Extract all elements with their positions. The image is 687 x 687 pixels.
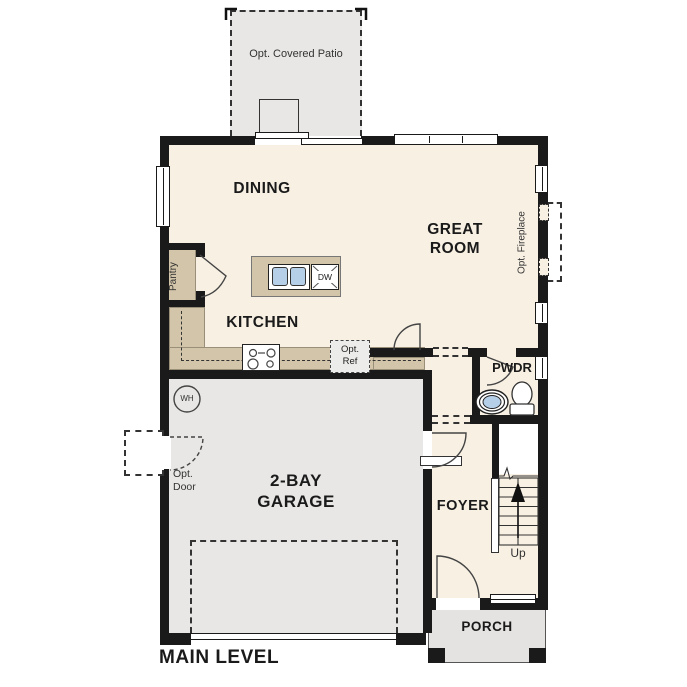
wall-left-1 (160, 136, 169, 167)
window-divider (462, 136, 463, 143)
window-divider (542, 167, 543, 191)
opt-fireplace-opening-bottom (539, 258, 549, 276)
floor-plan: Opt. Covered Patio DINING GREAT ROOM KIT… (0, 0, 687, 687)
window-divider (542, 304, 543, 322)
front-door-wall-gap (436, 598, 480, 610)
porch-label: PORCH (461, 619, 513, 636)
counter-left (169, 307, 205, 348)
great-room-label: GREAT ROOM (413, 218, 497, 260)
window-dining-left (156, 166, 170, 227)
wall-top-2 (361, 136, 394, 145)
window-foyer-sidelite (490, 594, 536, 604)
upper-cabinet-dash-h (181, 360, 421, 361)
stove (242, 344, 280, 371)
dining-label: DINING (222, 180, 302, 198)
pwdr-label: PWDR (484, 360, 540, 376)
island-sink-basin-left (272, 267, 288, 286)
upper-cabinet-dash-v (181, 311, 182, 361)
wall-pwdr-left (472, 357, 480, 415)
opt-door-label: Opt. Door (173, 466, 213, 496)
garage-door (190, 633, 397, 640)
porch-post-left (428, 648, 445, 663)
pantry-label: Pantry (167, 252, 181, 302)
stairs-up-label: Up (503, 546, 533, 561)
porch-post-right (529, 648, 546, 663)
window-greatroom-right-2 (535, 302, 548, 324)
stair-landing (499, 424, 538, 474)
kitchen-label: KITCHEN (215, 314, 310, 332)
wall-pantry-stub-top (196, 243, 205, 257)
stair-stringer (491, 478, 499, 553)
garage-door-dashed-outline (190, 540, 398, 633)
opening-hall-north (433, 347, 468, 357)
patio-label: Opt. Covered Patio (240, 47, 352, 62)
wall-garage-bottom-left (160, 633, 191, 645)
wall-stair-left (492, 424, 499, 478)
wall-garage-bottom-right (396, 633, 426, 645)
opt-fireplace-label: Opt. Fireplace (516, 198, 529, 288)
plan-title: MAIN LEVEL (159, 646, 329, 670)
entry-step (420, 456, 462, 466)
opt-fireplace-opening-top (539, 204, 549, 221)
wall-garage-right (423, 379, 432, 633)
wall-garage-top (163, 370, 432, 379)
window-greatroom-top (394, 134, 498, 145)
foyer-label: FOYER (432, 497, 494, 515)
wall-pantry-stub-bottom (196, 291, 205, 307)
opt-ref-label: Opt. Ref (331, 342, 369, 370)
sliding-door-panel (301, 138, 363, 145)
window-divider (542, 358, 543, 378)
wh-label: WH (176, 393, 198, 405)
wall-greatroom-south (370, 348, 433, 357)
opt-fireplace-bump (548, 202, 562, 282)
counter-east (373, 357, 425, 370)
dw-label: DW (315, 271, 335, 283)
garage-label: 2-BAY GARAGE (248, 468, 344, 514)
window-greatroom-right-1 (535, 165, 548, 193)
wall-pwdr-top-left (468, 348, 487, 357)
window-divider (491, 599, 535, 600)
window-divider (429, 136, 430, 143)
opening-hall-south (432, 415, 470, 424)
wall-pwdr-bottom (470, 415, 548, 424)
wall-top-1 (160, 136, 255, 145)
window-divider (163, 168, 164, 225)
island-sink-basin-right (290, 267, 306, 286)
opt-door-wall-gap (158, 436, 171, 469)
